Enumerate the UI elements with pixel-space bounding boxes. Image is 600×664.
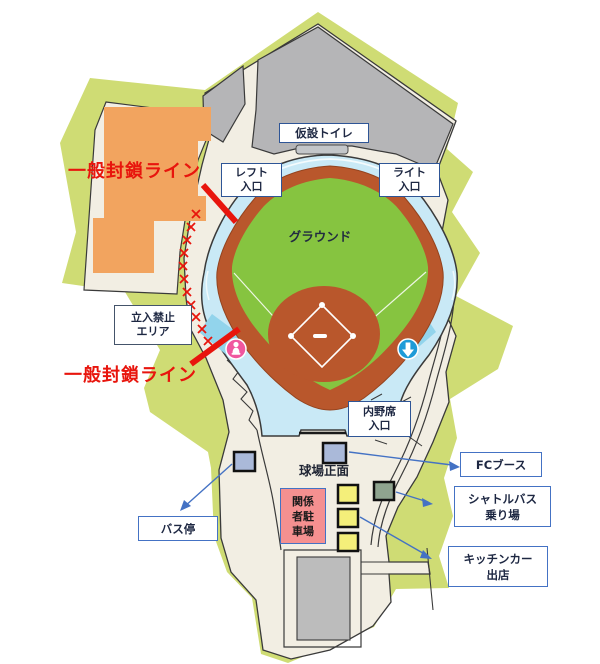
stadium-front-label: 球場正面	[289, 460, 359, 478]
pitcher-plate	[313, 334, 327, 338]
south-building	[297, 557, 350, 640]
entrance-down-arrow-icon	[398, 339, 418, 359]
third-base	[288, 333, 294, 339]
ground-label: グラウンド	[280, 226, 360, 244]
bus-stop-marker	[234, 452, 255, 471]
restricted-area-label: 立入禁止 エリア	[114, 305, 192, 345]
fc-booth-label: FCブース	[460, 452, 542, 477]
first-base	[350, 333, 356, 339]
kitchen-car-marker-1	[338, 485, 358, 503]
temp-toilet-block	[296, 145, 348, 154]
staff-parking-label: 関係 者駐 車場	[280, 488, 326, 544]
kitchen-car-label: キッチンカー 出店	[448, 546, 548, 587]
closure-line-lower-label: 一般封鎖ライン	[64, 364, 197, 384]
arrow-fc-booth-head	[449, 461, 460, 471]
second-base	[319, 302, 325, 308]
kitchen-car-marker-2	[338, 509, 358, 527]
bus-stop-label: バス停	[138, 516, 218, 541]
stadium-area-map: 仮設トイレ レフト 入口 ライト 入口 グラウンド 立入禁止 エリア 一般封鎖ラ…	[0, 0, 600, 664]
closure-line-upper-label: 一般封鎖ライン	[68, 160, 201, 180]
right-entrance-label: ライト 入口	[379, 163, 440, 197]
temp-toilet-label: 仮設トイレ	[279, 123, 369, 143]
infield-entrance-label: 内野席 入口	[348, 401, 411, 437]
orange-building-small	[93, 218, 154, 273]
left-entrance-label: レフト 入口	[221, 163, 282, 197]
shuttle-bus-marker	[374, 482, 394, 500]
shuttle-bus-label: シャトルバス 乗り場	[454, 486, 551, 527]
kitchen-car-marker-3	[338, 533, 358, 551]
person-marker-icon	[226, 339, 246, 359]
